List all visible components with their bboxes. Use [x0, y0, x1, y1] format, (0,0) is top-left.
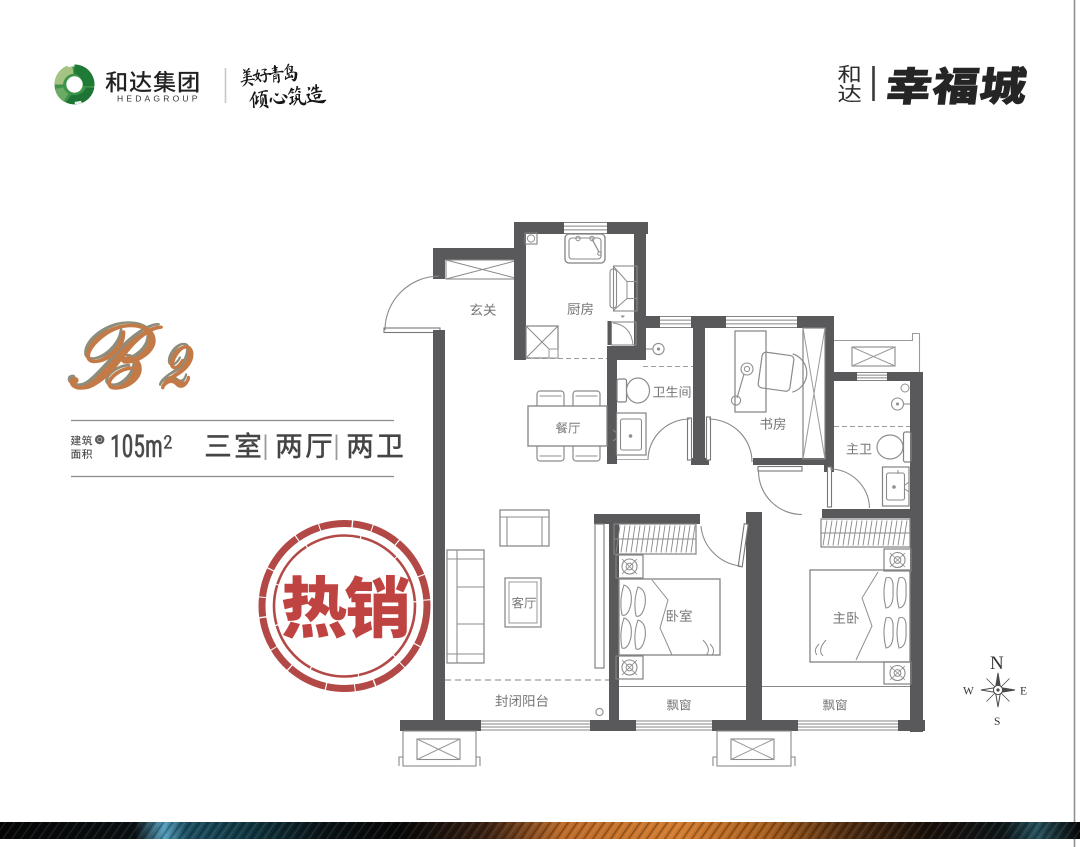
svg-text:W: W [963, 686, 974, 698]
svg-text:HEDAGROUP: HEDAGROUP [117, 94, 201, 104]
svg-text:S: S [994, 716, 1000, 728]
svg-text:E: E [1020, 686, 1027, 698]
svg-text:N: N [990, 653, 1004, 674]
